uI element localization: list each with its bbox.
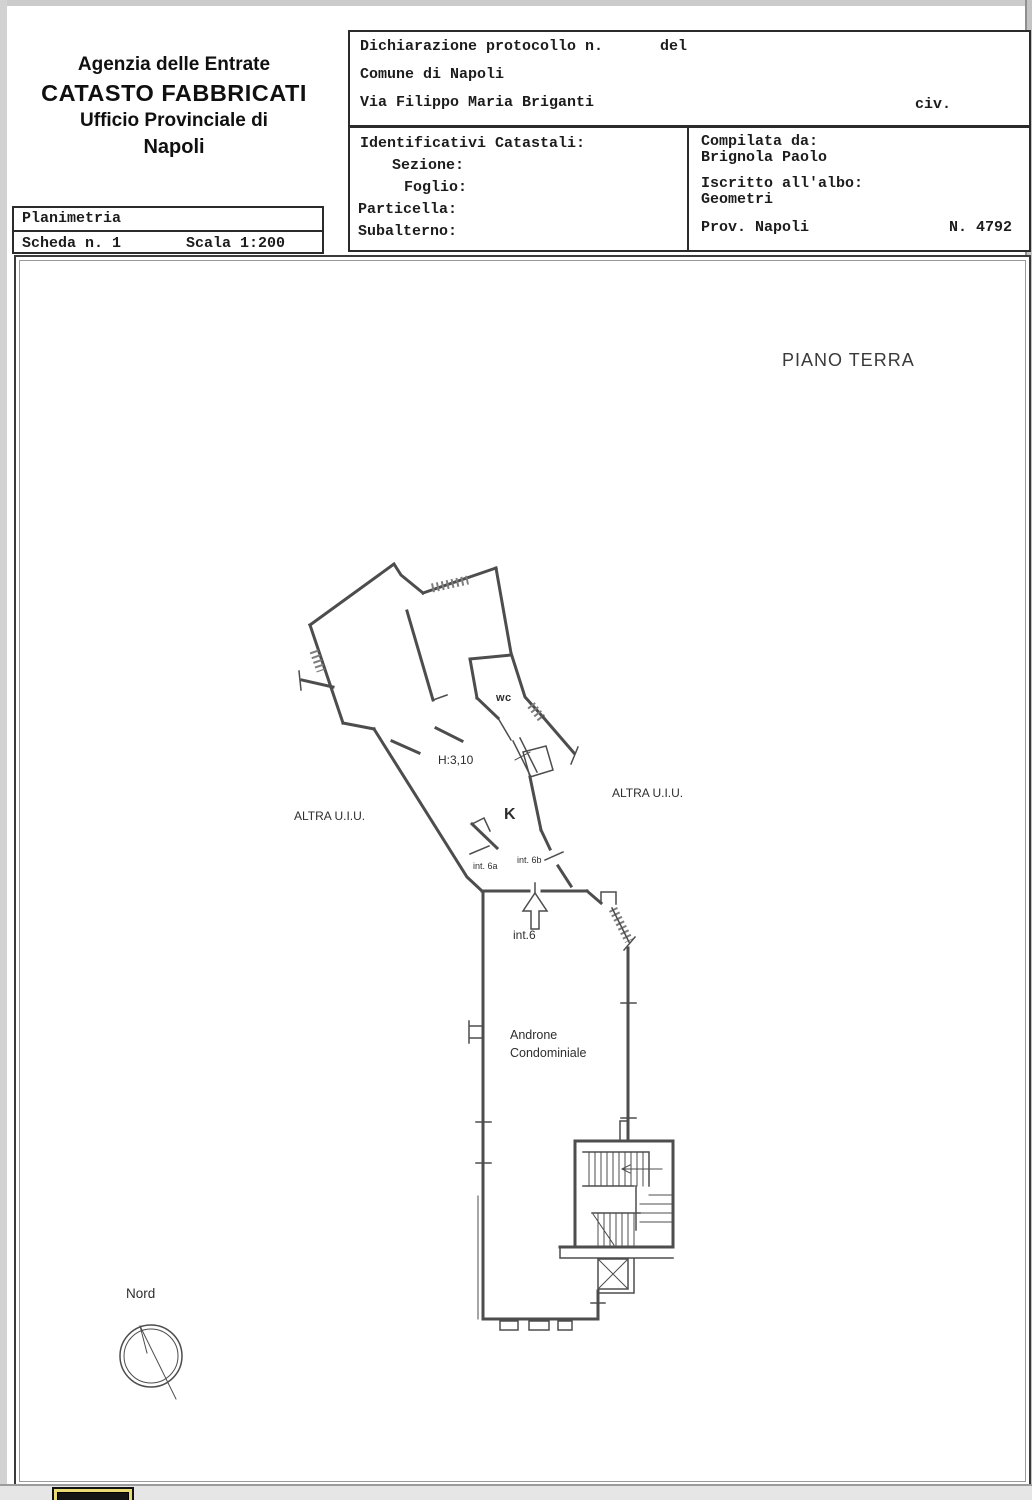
- apartment-walls: [299, 564, 543, 891]
- label-altra-uiu-right: ALTRA U.I.U.: [612, 786, 683, 800]
- scan-artifact-icon: [52, 1487, 134, 1500]
- label-androne-condominiale: Androne Condominiale: [510, 1026, 586, 1062]
- elevator-shaft: [598, 1259, 634, 1293]
- label-androne: Androne: [510, 1026, 586, 1044]
- label-int-6b: int. 6b: [517, 855, 542, 865]
- entrance-arrow: [523, 893, 547, 929]
- staircase: [560, 1121, 673, 1258]
- scan-artifact-icon-inner: [57, 1492, 129, 1500]
- label-altra-uiu-left: ALTRA U.I.U.: [294, 809, 365, 823]
- label-int-6a: int. 6a: [473, 861, 498, 871]
- label-kitchen: K: [504, 806, 516, 824]
- label-condominiale: Condominiale: [510, 1044, 586, 1062]
- label-ceiling-height: H:3,10: [438, 753, 473, 767]
- north-compass: [120, 1325, 182, 1399]
- label-nord: Nord: [126, 1286, 155, 1301]
- label-int-6: int.6: [513, 928, 536, 942]
- scan-edge-bottom: [0, 1484, 1032, 1500]
- label-wc: wc: [496, 692, 512, 704]
- floor-title: PIANO TERRA: [782, 350, 915, 371]
- entrance-hall: [469, 883, 636, 1330]
- scanned-document-page: Agenzia delle Entrate CATASTO FABBRICATI…: [0, 0, 1032, 1500]
- floor-plan-drawing: [0, 0, 1032, 1500]
